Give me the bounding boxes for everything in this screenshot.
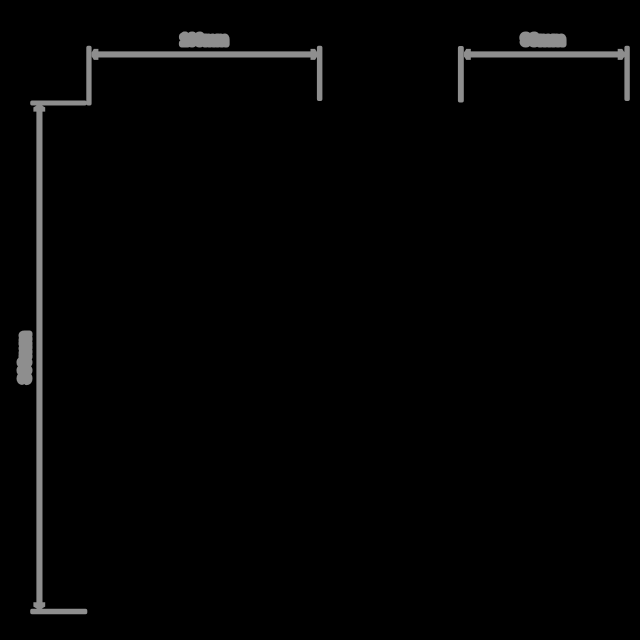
svg-text:300mm: 300mm: [16, 333, 33, 383]
svg-text:100mm: 100mm: [181, 32, 228, 49]
svg-text:90mm: 90mm: [522, 32, 565, 49]
